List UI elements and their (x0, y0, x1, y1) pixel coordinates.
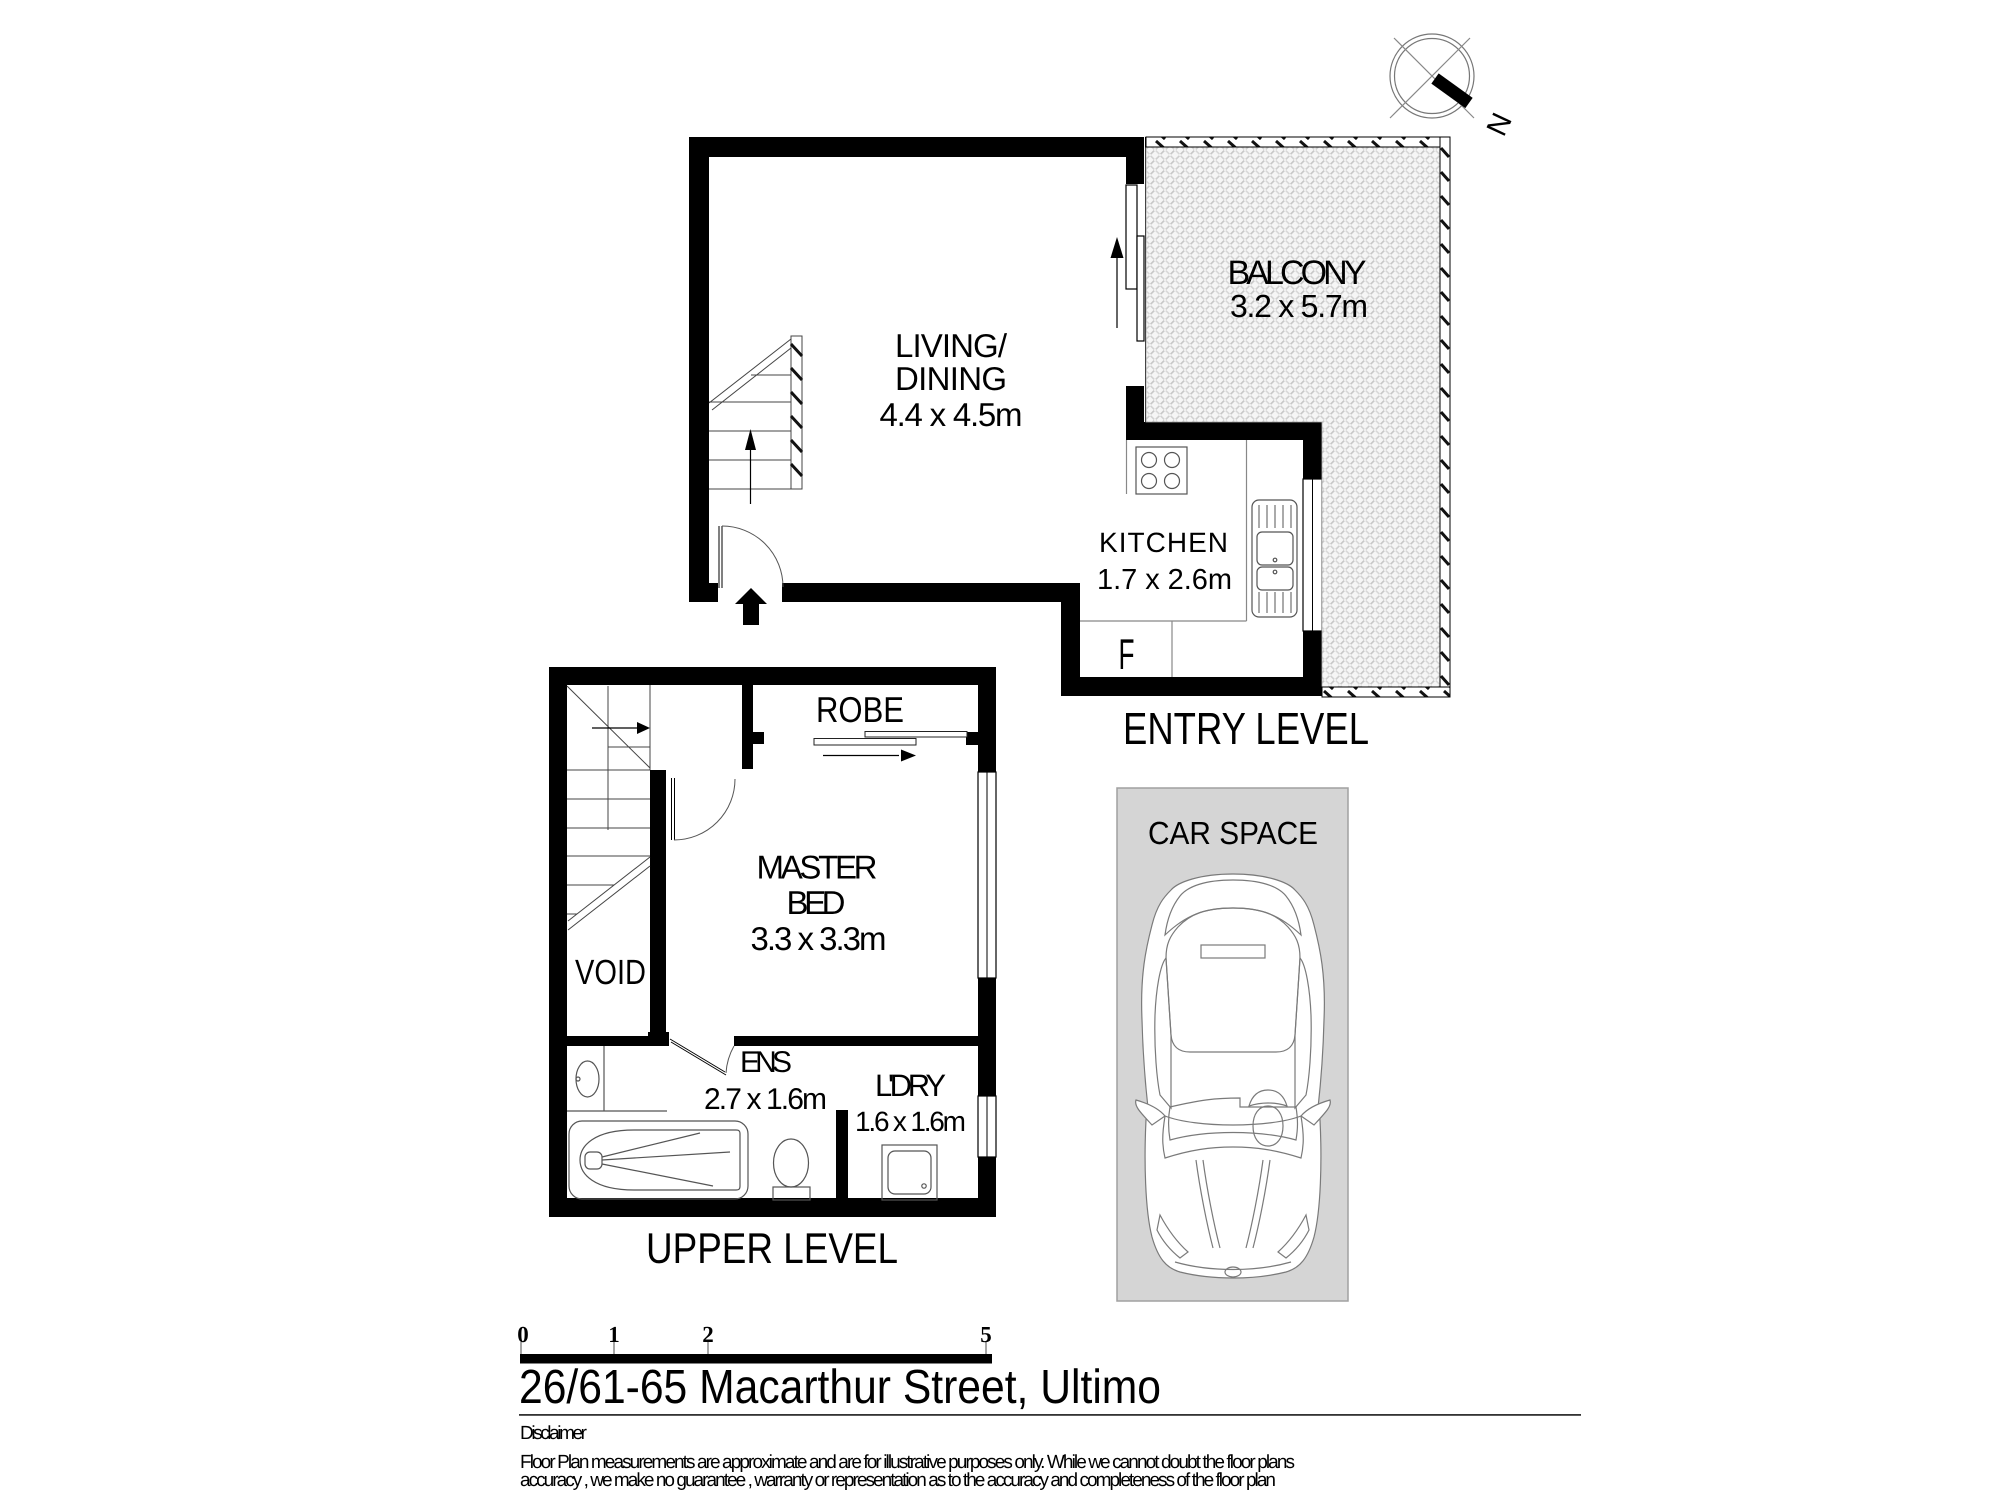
svg-text:MASTER: MASTER (757, 849, 878, 886)
svg-text:1: 1 (608, 1322, 620, 1347)
svg-text:BED: BED (787, 884, 846, 921)
svg-text:accuracy , we make no guarante: accuracy , we make no guarantee , warran… (520, 1470, 1276, 1491)
svg-text:ROBE: ROBE (816, 689, 904, 730)
svg-text:DINING: DINING (895, 360, 1007, 397)
svg-text:0: 0 (517, 1322, 529, 1347)
svg-text:ENS: ENS (740, 1046, 792, 1079)
svg-text:2: 2 (702, 1322, 714, 1347)
svg-text:4.4 x 4.5m: 4.4 x 4.5m (880, 396, 1023, 433)
svg-text:26/61-65 Macarthur Street, Ult: 26/61-65 Macarthur Street, Ultimo (519, 1361, 1161, 1414)
svg-text:N: N (1479, 108, 1517, 141)
svg-text:1.6 x 1.6m: 1.6 x 1.6m (855, 1106, 966, 1137)
svg-text:KITCHEN: KITCHEN (1099, 527, 1228, 558)
svg-text:LIVING/: LIVING/ (895, 327, 1008, 364)
svg-text:CAR SPACE: CAR SPACE (1148, 815, 1318, 851)
svg-text:1.7 x 2.6m: 1.7 x 2.6m (1097, 564, 1232, 596)
svg-text:ENTRY LEVEL: ENTRY LEVEL (1123, 703, 1369, 754)
svg-text:3.2 x 5.7m: 3.2 x 5.7m (1230, 288, 1368, 324)
svg-text:UPPER LEVEL: UPPER LEVEL (646, 1225, 898, 1273)
svg-text:2.7 x 1.6m: 2.7 x 1.6m (704, 1083, 827, 1116)
svg-text:VOID: VOID (575, 953, 646, 992)
svg-text:5: 5 (980, 1322, 992, 1347)
svg-text:BALCONY: BALCONY (1228, 254, 1367, 292)
svg-text:F: F (1119, 631, 1135, 679)
svg-text:3.3 x 3.3m: 3.3 x 3.3m (751, 920, 887, 957)
svg-text:L'DRY: L'DRY (875, 1068, 946, 1103)
svg-text:Disclaimer: Disclaimer (520, 1423, 588, 1444)
